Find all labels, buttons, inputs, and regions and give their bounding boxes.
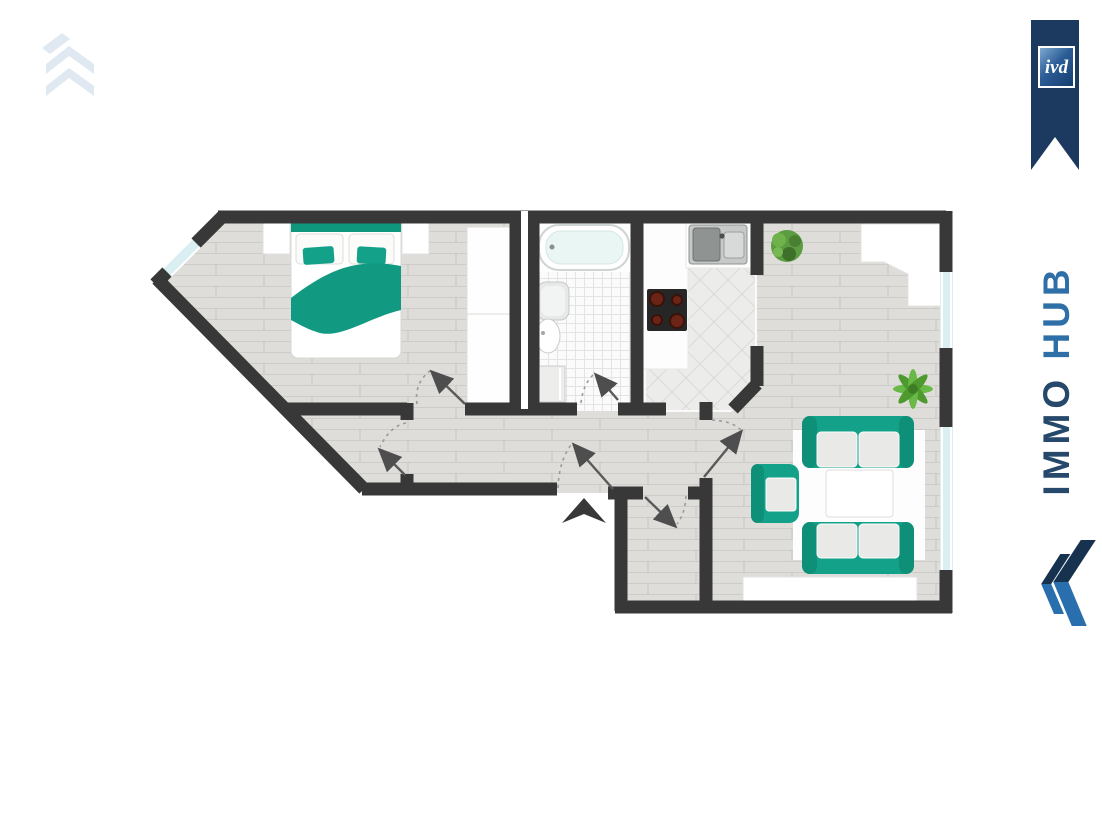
stove-icon [647, 289, 687, 331]
bathtub [539, 225, 629, 270]
nightstand-right [402, 223, 429, 254]
armchair [751, 464, 799, 523]
sofa-top [802, 416, 914, 468]
wardrobe [467, 227, 511, 403]
double-bed [291, 222, 401, 358]
palm-plant-icon [893, 369, 933, 409]
window-living-lower [940, 427, 953, 570]
immohub-chevron-icon [1036, 538, 1096, 633]
sofa-bottom [802, 522, 914, 574]
toilet [536, 319, 560, 353]
real-estate-floorplan-page: ivd IMMO HUB [0, 0, 1102, 830]
wall-shaft-gap [521, 211, 528, 409]
coffee-table [826, 470, 893, 517]
ivd-square: ivd [1038, 46, 1075, 88]
ivd-label: ivd [1045, 58, 1068, 77]
floor-plan [0, 0, 1102, 830]
wordmark-hub: HUB [1036, 264, 1077, 359]
window-living-upper [940, 272, 953, 348]
washbasin [537, 282, 569, 320]
double-sink-icon [689, 225, 747, 264]
brand-wordmark: IMMO HUB [1036, 230, 1080, 530]
sideboard [743, 577, 917, 603]
wordmark-immo: IMMO [1036, 375, 1077, 496]
nightstand-left [263, 223, 290, 254]
entrance-arrow-icon [562, 498, 606, 523]
round-plant-icon [771, 230, 803, 262]
